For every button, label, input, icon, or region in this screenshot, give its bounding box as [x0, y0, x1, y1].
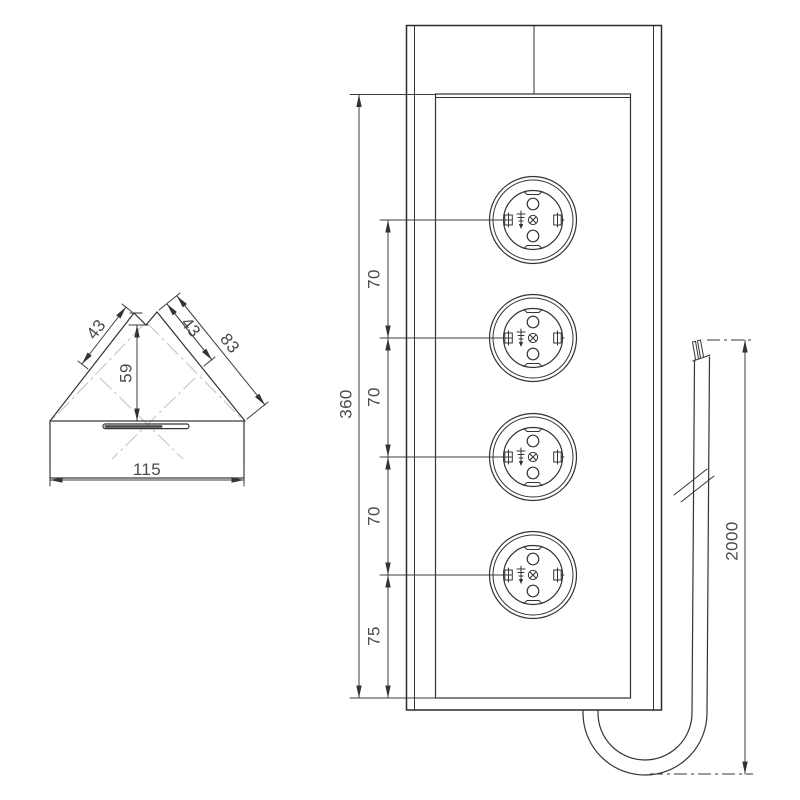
dim-total-height: 360	[336, 95, 436, 699]
dim-cable-length: 2000	[650, 340, 753, 774]
dim-label-spacing-3: 70	[364, 506, 383, 526]
socket-panel	[436, 94, 631, 698]
centerlines	[52, 324, 243, 459]
dim-label-right-face: 43	[177, 314, 204, 341]
technical-drawing: 43 43 83 59	[0, 0, 800, 800]
dim-label-cable-length: 2000	[722, 521, 741, 560]
dim-label-corner-height: 59	[116, 363, 135, 383]
base-slot-shade	[105, 425, 163, 428]
dim-label-left-face: 43	[83, 316, 110, 343]
cable-stripped-end	[693, 340, 711, 361]
dim-label-base-width: 115	[133, 460, 161, 479]
dim-right-edge: 83	[175, 294, 268, 419]
dim-corner-height: 59	[116, 325, 148, 421]
corner-top-view: 43 43 83 59	[50, 293, 268, 486]
technical-drawing-page: 43 43 83 59	[0, 0, 800, 800]
dim-label-bottom-offset: 75	[364, 626, 383, 646]
dim-right-face: 43	[159, 293, 215, 366]
dim-base-width: 115	[50, 460, 244, 486]
dim-label-spacing-2: 70	[364, 387, 383, 407]
corner-body-outline	[50, 312, 245, 478]
dim-label-total-height: 360	[336, 389, 355, 419]
dim-left-face: 43	[78, 304, 132, 369]
dim-label-spacing-1: 70	[364, 269, 383, 289]
dim-label-right-edge: 83	[216, 330, 243, 357]
front-view: 360 70 70 70 75	[336, 26, 661, 711]
